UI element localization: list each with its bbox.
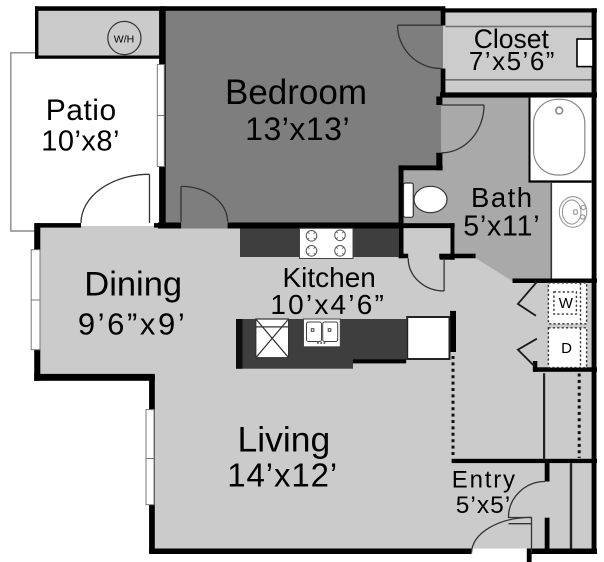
svg-text:Bath: Bath <box>471 182 534 213</box>
svg-text:Bedroom: Bedroom <box>225 73 367 112</box>
svg-text:14’x12’: 14’x12’ <box>227 457 338 494</box>
svg-text:W: W <box>559 295 574 312</box>
svg-text:5’x11’: 5’x11’ <box>463 211 540 243</box>
svg-text:Dining: Dining <box>84 266 182 304</box>
svg-text:Entry: Entry <box>452 467 517 494</box>
svg-text:9’6”x9’: 9’6”x9’ <box>78 306 188 341</box>
svg-text:5’x5’: 5’x5’ <box>456 492 511 519</box>
svg-text:W/H: W/H <box>114 33 134 45</box>
svg-text:10’x8’: 10’x8’ <box>41 126 120 158</box>
svg-text:Living: Living <box>238 420 331 460</box>
svg-text:13’x13’: 13’x13’ <box>245 111 350 147</box>
svg-text:10’x4’6”: 10’x4’6” <box>270 289 386 320</box>
svg-text:7’x5’6”: 7’x5’6” <box>469 46 556 76</box>
svg-text:Patio: Patio <box>46 94 117 127</box>
svg-text:D: D <box>561 340 572 357</box>
